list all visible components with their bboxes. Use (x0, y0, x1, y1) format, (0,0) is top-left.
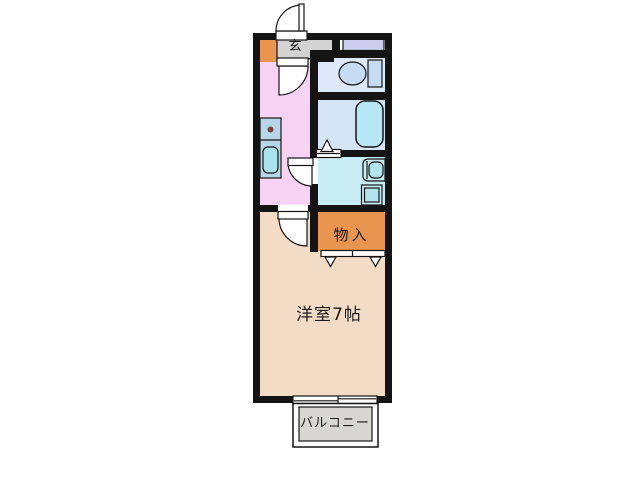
wall-kitchen-right-upper (310, 58, 318, 158)
wall-right (385, 33, 392, 403)
bathtub-icon (356, 101, 383, 147)
wall-left (253, 33, 260, 403)
floor-plan-canvas: 玄 物入 洋室7帖 バルコニー (0, 0, 640, 480)
wall-middle (253, 205, 392, 212)
stove-burner-icon (268, 127, 274, 133)
toilet-bowl-icon (339, 62, 366, 85)
wall-under-pipe-space (332, 50, 392, 58)
sliding-window-icon (293, 396, 377, 404)
genkan-door-leaf-icon (277, 58, 308, 66)
wall-toilet-bath (310, 92, 392, 100)
washroom-door-leaf-icon (288, 158, 313, 166)
wall-storage-left (310, 212, 318, 252)
vanity-sink-icon (369, 162, 383, 178)
entrance-door-leaf-icon (299, 4, 304, 31)
wall-bottom-right (377, 396, 392, 403)
toilet-tank-icon (368, 60, 382, 87)
main-room-label: 洋室7帖 (262, 306, 396, 325)
kitchen-sink-icon (263, 147, 278, 173)
genkan-label: 玄 (284, 40, 306, 54)
entrance-door-swing-icon (276, 5, 302, 31)
wall-bottom-left (253, 396, 293, 403)
storage-label: 物入 (318, 227, 385, 244)
balcony-label: バルコニー (297, 417, 373, 431)
washing-machine-drum-icon (365, 188, 380, 202)
mainroom-door-leaf-icon (278, 212, 308, 220)
wall-top-right (307, 33, 392, 40)
